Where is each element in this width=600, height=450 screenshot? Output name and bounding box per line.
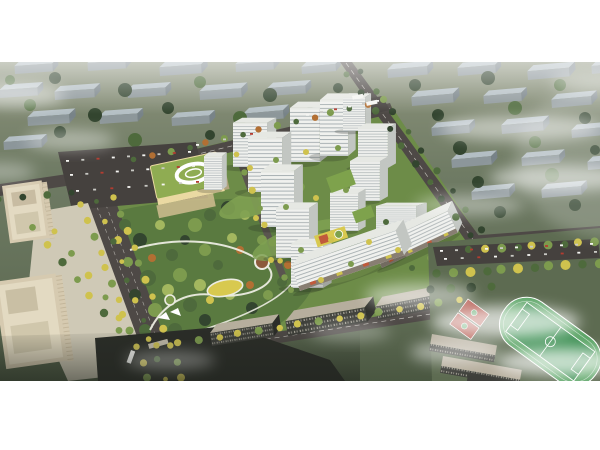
car: [76, 190, 79, 192]
tree: [202, 139, 208, 145]
tree: [116, 297, 122, 303]
tree: [277, 258, 283, 264]
tree: [123, 257, 133, 267]
tree: [155, 220, 165, 230]
car: [188, 151, 191, 153]
tree: [135, 260, 142, 267]
car: [545, 245, 548, 247]
tree: [357, 312, 364, 319]
car: [179, 182, 182, 184]
tree: [132, 245, 138, 251]
tree: [293, 119, 299, 125]
tree: [528, 242, 536, 250]
tree: [578, 260, 586, 268]
tree: [513, 264, 523, 274]
tree: [173, 268, 187, 282]
car: [444, 258, 447, 260]
tree: [249, 187, 256, 194]
car: [560, 244, 563, 246]
tree: [153, 308, 160, 315]
letterbox-top: [0, 0, 600, 62]
tree: [162, 284, 174, 296]
car: [511, 255, 514, 257]
tree: [187, 145, 193, 151]
tree: [488, 283, 496, 291]
car: [530, 246, 533, 248]
car: [127, 156, 130, 158]
tree: [561, 260, 571, 270]
tree: [124, 278, 130, 284]
car: [145, 185, 148, 187]
tree: [343, 187, 349, 193]
tree: [131, 157, 137, 163]
car: [485, 248, 488, 250]
car: [306, 114, 309, 116]
tree: [85, 272, 93, 280]
car: [116, 171, 119, 173]
tree: [240, 132, 246, 138]
tree: [412, 160, 420, 168]
tree: [117, 211, 124, 218]
tree: [213, 260, 223, 270]
tree: [366, 239, 372, 245]
tree: [318, 277, 324, 283]
tree: [241, 169, 247, 175]
tree: [103, 294, 109, 300]
car: [544, 253, 547, 255]
tree: [68, 250, 75, 257]
car: [500, 247, 503, 249]
tree: [383, 219, 389, 225]
tree: [348, 261, 354, 267]
tree: [466, 267, 476, 277]
car: [455, 249, 458, 251]
tree: [166, 249, 178, 261]
car: [127, 186, 130, 188]
tree: [69, 190, 75, 196]
tree: [77, 201, 83, 207]
tree: [44, 241, 52, 249]
car: [440, 250, 443, 252]
tree: [168, 148, 175, 155]
tree: [483, 267, 491, 275]
tree: [141, 318, 146, 323]
tree: [418, 147, 424, 153]
tree: [427, 179, 433, 185]
tree: [337, 315, 343, 321]
tree: [199, 314, 211, 326]
tree: [283, 204, 289, 210]
car: [162, 184, 165, 186]
car: [223, 139, 226, 141]
tree: [247, 165, 253, 171]
tree: [58, 258, 66, 266]
car: [575, 244, 578, 246]
tree: [148, 254, 156, 262]
car: [515, 247, 518, 249]
car: [70, 174, 73, 176]
car: [250, 133, 253, 135]
tree: [312, 115, 318, 121]
tree: [194, 279, 206, 291]
haze: [0, 62, 600, 114]
tree: [102, 219, 108, 225]
letterbox-bottom: [0, 381, 600, 450]
tree: [98, 250, 104, 256]
tree: [84, 217, 91, 224]
tree: [149, 152, 155, 158]
tree: [303, 149, 309, 155]
tree: [261, 222, 267, 228]
tree: [52, 228, 58, 234]
tree: [119, 311, 126, 318]
car: [177, 166, 180, 168]
car: [494, 256, 497, 258]
car: [470, 249, 473, 251]
tree: [531, 264, 539, 272]
tree: [206, 296, 214, 304]
tree: [432, 269, 440, 277]
tree: [253, 215, 259, 221]
car: [527, 254, 530, 256]
tree: [313, 195, 319, 201]
car: [112, 157, 115, 159]
tree: [387, 126, 393, 132]
tree: [110, 238, 116, 244]
tree: [453, 141, 467, 155]
car: [577, 252, 580, 254]
tree: [406, 129, 412, 135]
tree: [108, 280, 116, 288]
car: [131, 170, 134, 172]
tree: [269, 239, 276, 246]
tree: [246, 281, 254, 289]
tree: [128, 133, 142, 147]
car: [66, 160, 69, 162]
car: [590, 243, 593, 245]
car: [142, 154, 145, 156]
car: [461, 257, 464, 259]
tree: [94, 199, 99, 204]
tree: [274, 122, 281, 129]
tree: [100, 309, 108, 317]
tree: [234, 152, 240, 158]
tree: [255, 126, 261, 132]
car: [477, 256, 480, 258]
tree: [205, 130, 215, 140]
tree: [29, 224, 36, 231]
tree: [450, 188, 456, 194]
tree: [315, 317, 323, 325]
car: [101, 172, 104, 174]
tree: [188, 218, 202, 232]
park-plaza-node: [165, 295, 175, 305]
tree: [180, 235, 190, 245]
car: [196, 144, 199, 146]
tree: [472, 176, 484, 188]
rendering-frame: [0, 0, 600, 450]
tree: [496, 265, 505, 274]
tree: [257, 206, 263, 212]
tree: [395, 247, 401, 253]
tree: [204, 209, 216, 221]
tree: [268, 257, 274, 263]
tree: [468, 232, 474, 238]
tree: [288, 287, 294, 293]
tree: [124, 227, 132, 235]
tree: [149, 293, 155, 299]
car: [561, 253, 564, 255]
tree: [199, 244, 211, 256]
car: [81, 159, 84, 161]
tree: [544, 261, 553, 270]
car: [594, 251, 597, 253]
tree: [294, 320, 301, 327]
tree: [227, 233, 237, 243]
tree: [375, 308, 383, 316]
car: [93, 189, 96, 191]
tree: [273, 157, 279, 163]
car: [192, 165, 195, 167]
car: [146, 168, 149, 170]
tree: [433, 167, 440, 174]
tree: [398, 142, 405, 149]
tree: [281, 274, 287, 280]
tree: [298, 247, 304, 253]
aerial-rendering: [0, 0, 600, 450]
tree: [335, 145, 341, 151]
tree: [409, 265, 415, 271]
tree: [74, 276, 81, 283]
tree: [43, 191, 51, 199]
car: [97, 158, 100, 160]
tree: [263, 290, 273, 300]
car: [196, 181, 199, 183]
tree: [142, 276, 150, 284]
car: [85, 173, 88, 175]
tree: [19, 194, 26, 201]
car: [173, 152, 176, 154]
tree: [328, 237, 334, 243]
tree: [110, 194, 116, 200]
car: [110, 187, 113, 189]
car: [158, 153, 161, 155]
tree: [132, 297, 138, 303]
tree: [101, 264, 108, 271]
tree: [183, 298, 197, 312]
car: [162, 167, 165, 169]
tree: [544, 241, 553, 250]
tree: [85, 292, 93, 300]
tree: [449, 268, 458, 277]
tree: [119, 259, 124, 264]
tree: [91, 233, 99, 241]
tree: [478, 226, 485, 233]
